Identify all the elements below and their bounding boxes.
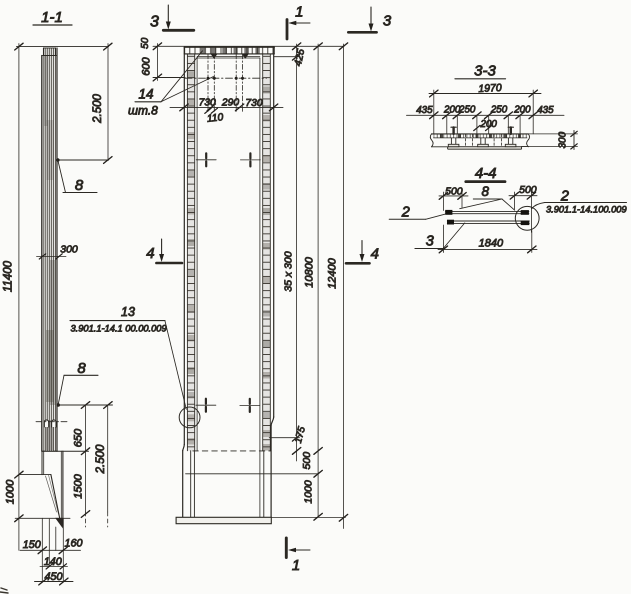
svg-text:шт.8: шт.8 — [128, 104, 158, 118]
svg-text:3.901.1-14.1 00.00.009: 3.901.1-14.1 00.00.009 — [71, 324, 167, 334]
svg-text:250: 250 — [490, 105, 508, 116]
svg-text:10800: 10800 — [303, 256, 315, 287]
svg-text:4: 4 — [146, 245, 154, 262]
svg-text:4-4: 4-4 — [475, 165, 497, 182]
svg-text:435: 435 — [537, 105, 554, 116]
svg-text:290: 290 — [221, 97, 239, 108]
svg-text:1000: 1000 — [5, 479, 17, 504]
svg-text:1: 1 — [295, 4, 303, 21]
svg-text:8: 8 — [77, 360, 86, 377]
svg-text:1-1: 1-1 — [41, 9, 63, 26]
svg-text:140: 140 — [44, 556, 62, 568]
svg-text:110: 110 — [206, 112, 224, 125]
svg-text:600: 600 — [140, 56, 152, 75]
svg-text:1840: 1840 — [479, 237, 504, 249]
svg-text:425: 425 — [293, 48, 307, 67]
svg-text:500: 500 — [301, 452, 313, 470]
svg-text:50: 50 — [140, 37, 151, 49]
svg-text:12400: 12400 — [327, 257, 339, 288]
svg-text:175: 175 — [293, 425, 308, 444]
svg-text:1: 1 — [292, 557, 300, 574]
svg-text:2.500: 2.500 — [95, 444, 107, 474]
svg-text:3-3: 3-3 — [474, 63, 496, 80]
svg-text:730: 730 — [199, 97, 216, 108]
svg-text:1500: 1500 — [73, 473, 85, 498]
svg-text:35 x 300: 35 x 300 — [283, 251, 295, 291]
svg-text:650: 650 — [73, 428, 85, 447]
svg-text:300: 300 — [60, 244, 78, 256]
svg-text:3: 3 — [383, 13, 392, 30]
svg-text:2: 2 — [401, 204, 410, 220]
svg-text:160: 160 — [64, 538, 82, 550]
svg-text:200: 200 — [513, 105, 531, 116]
svg-text:11400: 11400 — [3, 260, 15, 292]
svg-text:8: 8 — [481, 184, 489, 199]
svg-text:1000: 1000 — [302, 480, 314, 504]
svg-text:250: 250 — [458, 105, 476, 116]
svg-text:3: 3 — [426, 234, 434, 250]
svg-text:150: 150 — [23, 539, 41, 551]
svg-text:450: 450 — [44, 571, 62, 583]
svg-text:13: 13 — [121, 305, 135, 319]
svg-text:730: 730 — [245, 98, 262, 109]
svg-text:3: 3 — [150, 14, 159, 31]
svg-text:8: 8 — [75, 177, 84, 194]
svg-text:435: 435 — [416, 105, 433, 116]
svg-text:4: 4 — [371, 246, 379, 263]
svg-text:3.901.1-14.100.009: 3.901.1-14.100.009 — [546, 205, 627, 215]
svg-text:300: 300 — [557, 131, 568, 148]
svg-text:14: 14 — [138, 87, 153, 102]
svg-text:2.500: 2.500 — [92, 94, 104, 124]
